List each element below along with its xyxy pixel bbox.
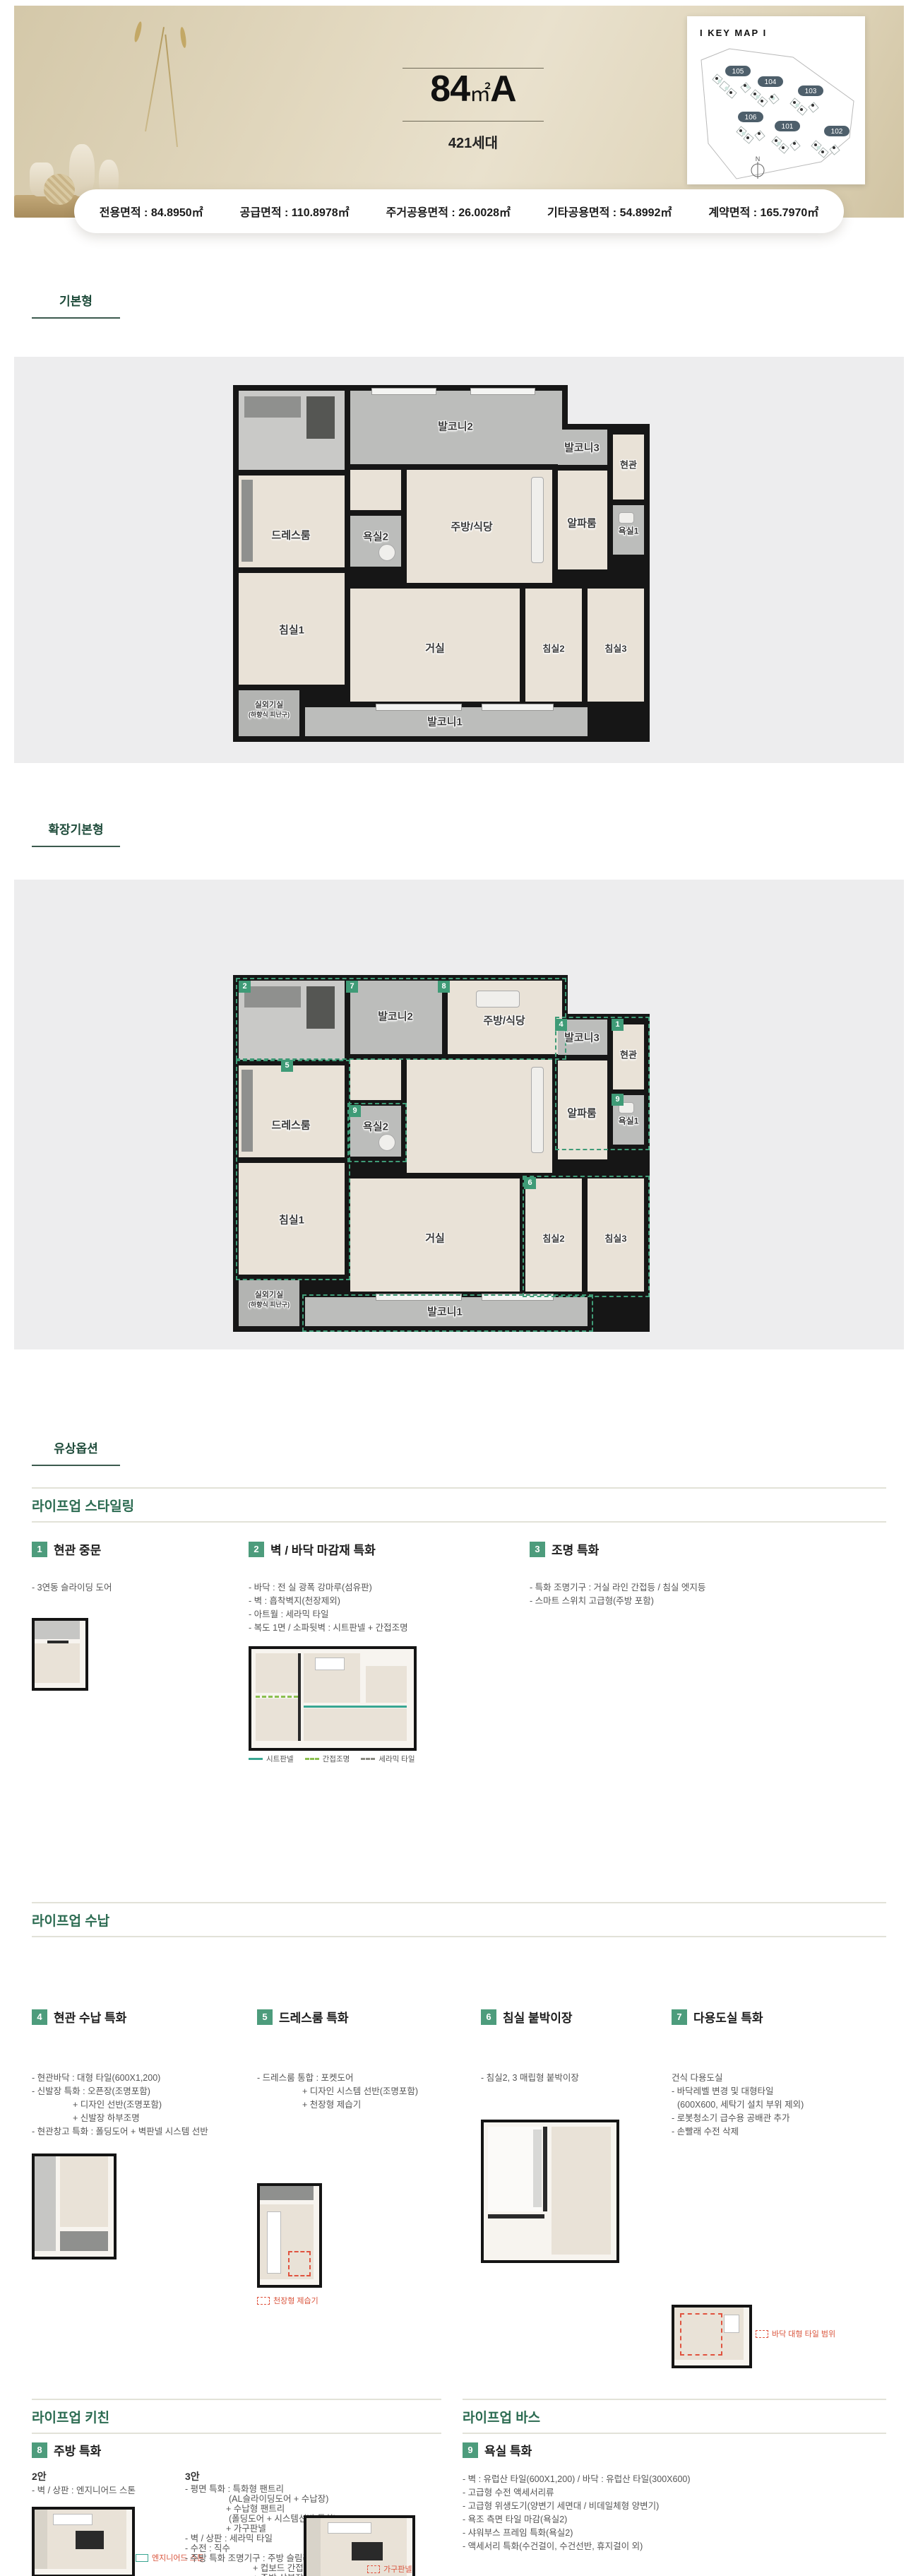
room-label-balcony2: 발코니2 <box>438 419 473 434</box>
room-label-kitchen: 주방/식당 <box>483 1013 525 1028</box>
plan-badge-7: 7 <box>346 981 358 993</box>
subsection-title: 라이프업 키친 <box>32 2407 109 2426</box>
keymap-title: I KEY MAP I <box>700 28 767 38</box>
wheat-head-decoration <box>133 21 143 43</box>
room-label-kitchen: 주방/식당 <box>451 519 492 534</box>
option-2-legend: 시트판넬 간접조명 세라믹 타일 <box>249 1754 415 1764</box>
wheat-head-decoration <box>179 27 187 49</box>
svg-text:N: N <box>756 155 761 163</box>
area-item: 계약면적 : 165.7970㎡ <box>708 203 818 220</box>
room-label-bed1: 침실1 <box>279 622 304 637</box>
option-item-9-title: 9 욕실 특화 <box>463 2441 532 2459</box>
option-number-badge: 9 <box>463 2442 478 2458</box>
option-item-7-details: 건식 다용도실 - 바닥레벨 변경 및 대형타일 (600X600, 세탁기 설… <box>672 2072 804 2139</box>
option-4-miniplan <box>32 2153 117 2259</box>
option-number-badge: 8 <box>32 2442 47 2458</box>
subsection-title: 라이프업 수납 <box>32 1910 109 1930</box>
option-number-badge: 1 <box>32 1542 47 1557</box>
option-number-badge: 7 <box>672 2009 687 2025</box>
north-compass-icon: N <box>751 155 764 179</box>
header-hero-image: 84㎡A 421세대 I KEY MAP I <box>14 6 904 218</box>
room-label-ac: 실외기실 <box>255 699 283 710</box>
room-label-balcony3: 발코니3 <box>564 440 600 455</box>
option-item-2-title: 2 벽 / 바닥 마감재 특화 <box>249 1540 376 1558</box>
subsection-header-bath: 라이프업 바스 <box>463 2399 886 2434</box>
plan-badge-5: 5 <box>281 1060 293 1072</box>
room-label-dressroom: 드레스룸 <box>271 1118 310 1133</box>
unit-size: 84 <box>430 69 470 110</box>
unit-title: 84㎡A <box>381 69 565 115</box>
option-item-6-details: - 침실2, 3 매립형 붙박이장 <box>481 2072 579 2085</box>
room-label-ac: 실외기실 <box>255 1289 283 1300</box>
subsection-header-storage: 라이프업 수납 <box>32 1902 886 1937</box>
subsection-header-kitchen: 라이프업 키친 <box>32 2399 441 2434</box>
room-label-alpha: 알파룸 <box>567 1106 596 1121</box>
option-item-5-details: - 드레스룸 통합 : 포켓도어 + 디자인 시스템 선반(조명포함) + 천장… <box>257 2072 418 2112</box>
area-info-bar: 전용면적 : 84.8950㎡ 공급면적 : 110.8978㎡ 주거공용면적 … <box>74 189 844 233</box>
room-label-dressroom: 드레스룸 <box>271 528 310 543</box>
section-title-extended: 확장기본형 <box>32 820 120 847</box>
option-1-miniplan <box>32 1618 88 1691</box>
option-item-3-details: - 특화 조명기구 : 거실 라인 간접등 / 침실 엣지등 - 스마트 스위치… <box>530 1581 705 1608</box>
svg-text:105: 105 <box>732 68 744 76</box>
floorplan-basic: 발코니2 발코니3 드레스룸 욕실2 주방/식당 알파룸 현관 욕실1 침실1 … <box>233 385 650 742</box>
room-label-living: 거실 <box>425 1231 445 1246</box>
option-item-5-title: 5 드레스룸 특화 <box>257 2008 349 2026</box>
title-divider-bottom <box>403 121 544 122</box>
option-item-4-details: - 현관바닥 : 대형 타일(600X1,200) - 신발장 특화 : 오픈장… <box>32 2072 208 2139</box>
option-2-miniplan <box>249 1646 417 1751</box>
option-item-2-details: - 바닥 : 전 실 광폭 강마루(섬유판) - 벽 : 흡착벽지(천장제외) … <box>249 1581 408 1635</box>
option-number-badge: 6 <box>481 2009 496 2025</box>
option-7-caption: 바닥 대형 타일 범위 <box>756 2328 835 2339</box>
room-label-bed3: 침실3 <box>604 1231 626 1245</box>
option-5-caption: 천장형 제습기 <box>257 2295 318 2306</box>
room-label-bed2: 침실2 <box>542 642 564 655</box>
plan-badge-8: 8 <box>438 981 450 993</box>
wheat-decoration <box>165 35 178 147</box>
area-item: 공급면적 : 110.8978㎡ <box>240 203 350 220</box>
option-5-miniplan <box>257 2183 322 2288</box>
kitchen-plan2-miniplan <box>32 2507 135 2576</box>
plan-badge-6: 6 <box>524 1177 536 1189</box>
unit-sqm: ㎡ <box>470 83 490 106</box>
area-item: 주거공용면적 : 26.0028㎡ <box>386 203 511 220</box>
plan-badge-9: 9 <box>349 1105 361 1117</box>
room-label-bath2: 욕실2 <box>363 529 388 544</box>
wheat-decoration <box>145 27 165 131</box>
svg-text:102: 102 <box>831 128 843 136</box>
room-label-bed1: 침실1 <box>279 1212 304 1227</box>
keymap-panel: I KEY MAP I <box>687 16 865 184</box>
room-label-entrance: 현관 <box>620 458 637 471</box>
option-6-miniplan <box>481 2120 619 2263</box>
room-label-entrance: 현관 <box>620 1048 637 1061</box>
unit-type: A <box>490 69 516 110</box>
extended-plan-panel: 2 7 8 9 4 1 5 6 9 발코니2 주방/식당 발코니3 드레스룸 욕… <box>14 880 904 1349</box>
kitchen-plan3-caption: 가구판넬 <box>367 2563 412 2575</box>
room-label-bed3: 침실3 <box>604 642 626 655</box>
option-item-8-title: 8 주방 특화 <box>32 2441 101 2459</box>
section-title-basic: 기본형 <box>32 291 120 319</box>
svg-text:101: 101 <box>782 123 794 131</box>
option-item-3-title: 3 조명 특화 <box>530 1540 599 1558</box>
floorplan-extended: 2 7 8 9 4 1 5 6 9 발코니2 주방/식당 발코니3 드레스룸 욕… <box>233 975 650 1332</box>
room-label-bath1: 욕실1 <box>619 525 639 537</box>
option-7-miniplan <box>672 2305 752 2368</box>
room-label-ac-sub: (하향식 피난구) <box>249 710 290 719</box>
option-number-badge: 3 <box>530 1542 545 1557</box>
room-label-bath1: 욕실1 <box>619 1115 639 1127</box>
household-count: 421세대 <box>381 131 565 152</box>
kitchen-plan2-details: - 벽 / 상판 : 엔지니어드 스톤 <box>32 2484 136 2498</box>
plan-badge-9b: 9 <box>612 1094 624 1106</box>
room-label-ac-sub: (하향식 피난구) <box>249 1300 290 1309</box>
unit-title-block: 84㎡A 421세대 <box>381 68 565 152</box>
room-label-bed2: 침실2 <box>542 1231 564 1245</box>
plan-badge-1: 1 <box>612 1019 624 1031</box>
room-label-living: 거실 <box>425 641 445 656</box>
option-item-7-title: 7 다용도실 특화 <box>672 2008 763 2026</box>
room-label-alpha: 알파룸 <box>567 516 596 531</box>
subsection-header-styling: 라이프업 스타일링 <box>32 1487 886 1523</box>
area-item: 기타공용면적 : 54.8992㎡ <box>547 203 672 220</box>
option-number-badge: 2 <box>249 1542 264 1557</box>
rattan-ball-decoration <box>44 174 75 205</box>
section-title-options: 유상옵션 <box>32 1438 120 1466</box>
room-label-balcony1: 발코니1 <box>427 714 463 729</box>
svg-text:106: 106 <box>745 114 757 122</box>
option-item-4-title: 4 현관 수납 특화 <box>32 2008 126 2026</box>
room-label-bath2: 욕실2 <box>363 1119 388 1134</box>
option-item-1-details: - 3연동 슬라이딩 도어 <box>32 1581 112 1595</box>
brochure-page: 84㎡A 421세대 I KEY MAP I <box>0 0 918 2576</box>
option-number-badge: 5 <box>257 2009 273 2025</box>
subsection-title: 라이프업 스타일링 <box>32 1496 134 1515</box>
basic-plan-panel: 발코니2 발코니3 드레스룸 욕실2 주방/식당 알파룸 현관 욕실1 침실1 … <box>14 357 904 763</box>
option-item-9-details: - 벽 : 유럽산 타일(600X1,200) / 바닥 : 유럽산 타일(30… <box>463 2473 691 2553</box>
plan-badge-2: 2 <box>239 981 251 993</box>
room-label-balcony3: 발코니3 <box>564 1030 600 1045</box>
room-label-balcony2: 발코니2 <box>378 1009 413 1024</box>
option-item-1-title: 1 현관 중문 <box>32 1540 101 1558</box>
kitchen-plan2-label: 2안 <box>32 2469 47 2483</box>
kitchen-plan3-label: 3안 <box>185 2469 200 2483</box>
subsection-title: 라이프업 바스 <box>463 2407 540 2426</box>
plan-badge-4: 4 <box>555 1019 567 1031</box>
room-label-balcony1: 발코니1 <box>427 1304 463 1319</box>
area-item: 전용면적 : 84.8950㎡ <box>100 203 203 220</box>
svg-text:104: 104 <box>765 78 777 86</box>
keymap-site-map: 105 104 103 106 101 102 N <box>687 16 865 184</box>
option-number-badge: 4 <box>32 2009 47 2025</box>
svg-text:103: 103 <box>805 88 817 95</box>
option-item-6-title: 6 침실 붙박이장 <box>481 2008 573 2026</box>
